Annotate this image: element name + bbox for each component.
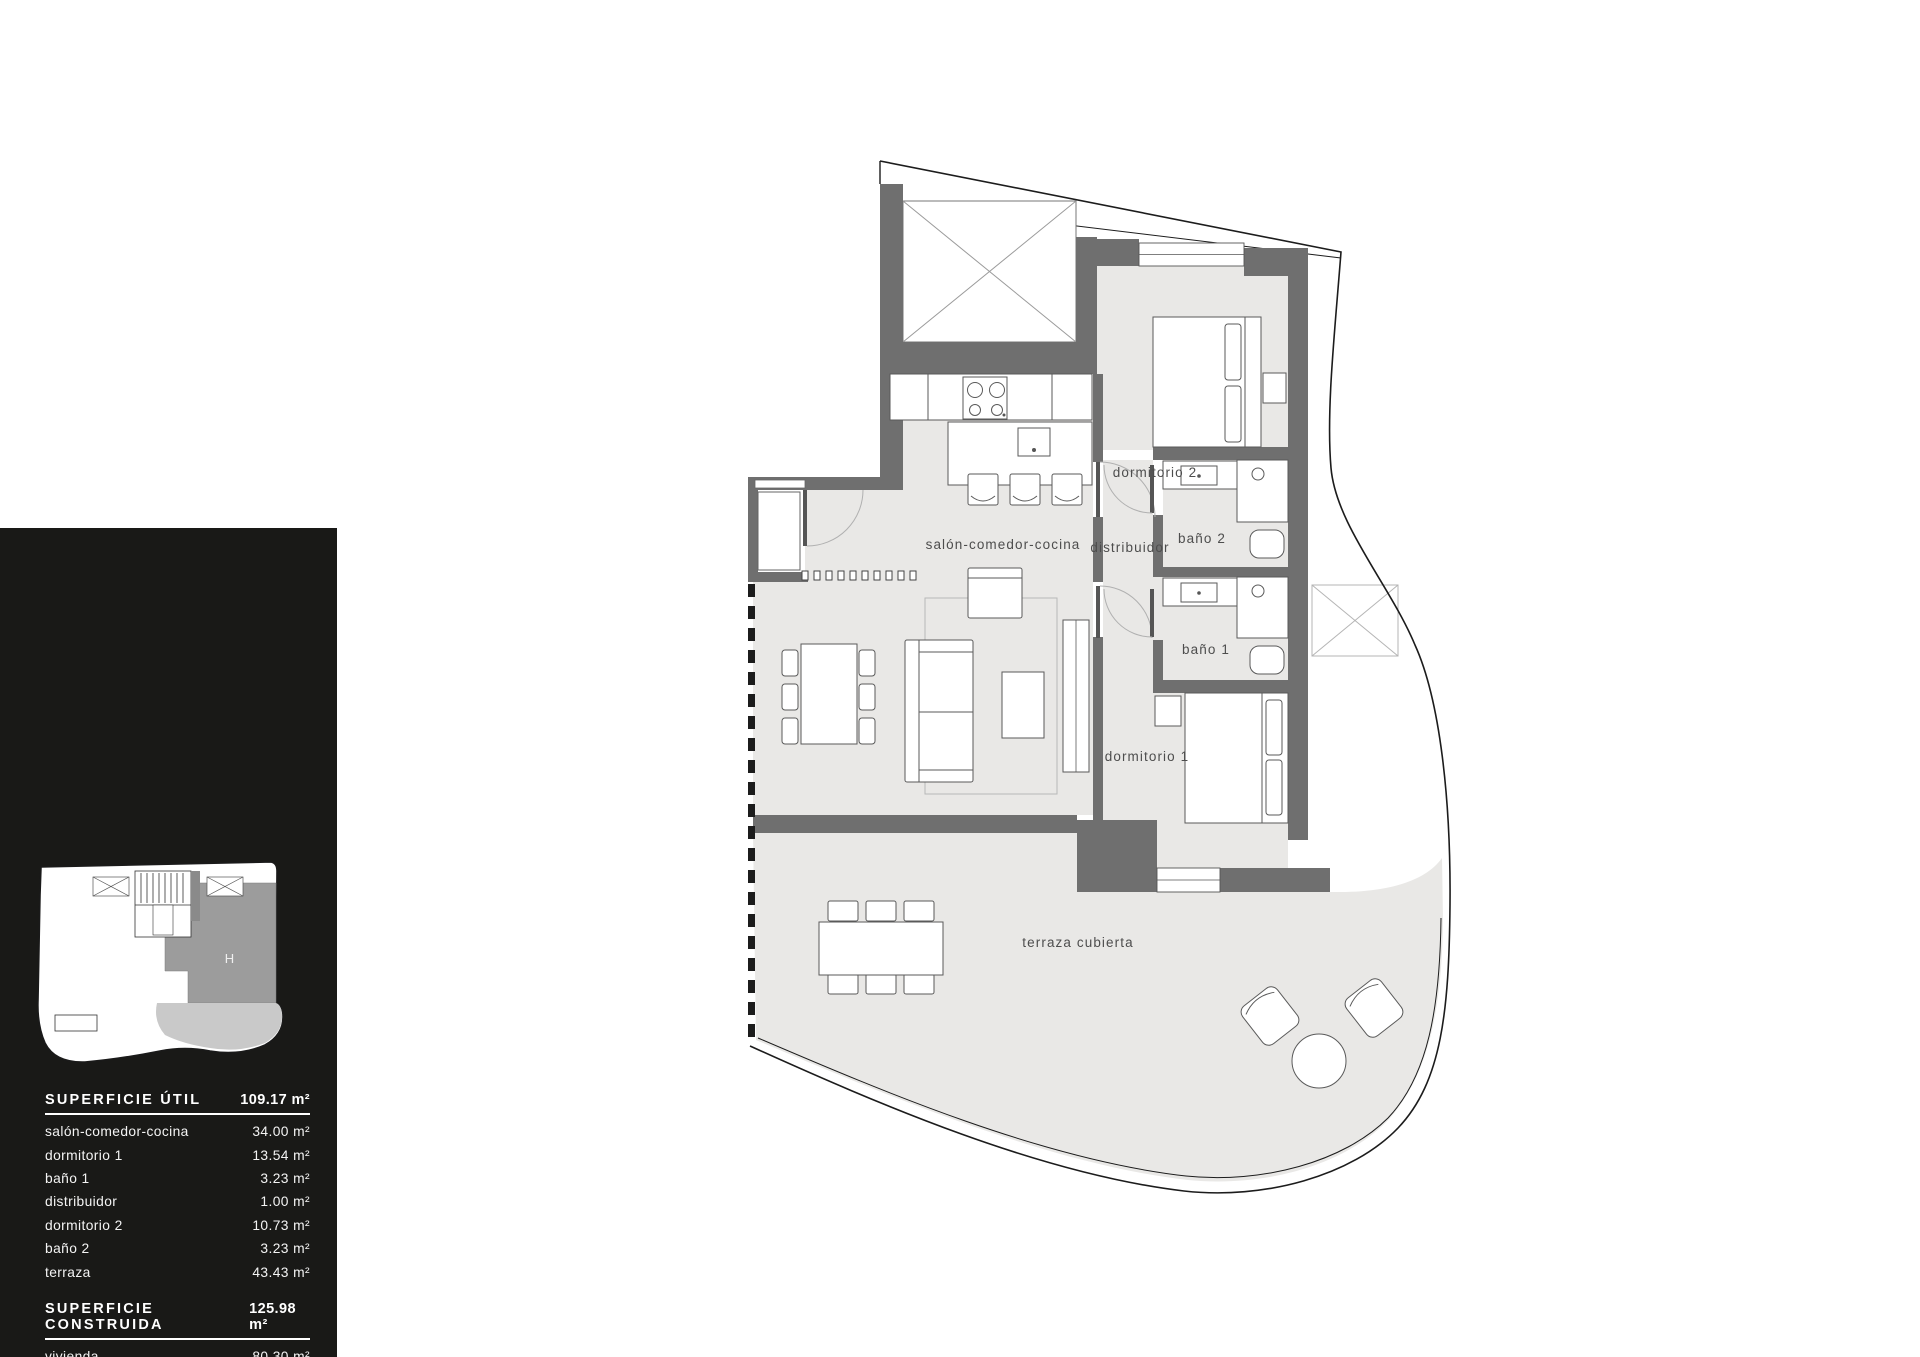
area-row-label: salón-comedor-cocina (45, 1124, 189, 1139)
area-table: SUPERFICIE ÚTIL109.17 m²salón-comedor-co… (45, 1092, 310, 1357)
label-salon: salón-comedor-cocina (926, 537, 1081, 552)
area-row-label: dormitorio 2 (45, 1218, 123, 1233)
area-row: baño 13.23 m² (45, 1167, 310, 1190)
area-section-header: SUPERFICIE CONSTRUIDA125.98 m² (45, 1301, 310, 1340)
label-dormitorio2: dormitorio 2 (1113, 465, 1197, 480)
area-row-value: 13.54 m² (252, 1148, 310, 1163)
locator-elevator (191, 871, 200, 921)
area-row-label: vivienda (45, 1349, 99, 1357)
terrace-dining-set (819, 901, 943, 994)
area-row: dormitorio 210.73 m² (45, 1214, 310, 1237)
area-row-label: terraza (45, 1265, 91, 1280)
coffee-table (1002, 672, 1044, 738)
area-row: vivienda80.30 m² (45, 1345, 310, 1357)
tv-bench (1063, 620, 1089, 772)
kitchen-counter (890, 374, 1092, 420)
area-row: salón-comedor-cocina34.00 m² (45, 1120, 310, 1143)
area-row-label: baño 1 (45, 1171, 90, 1186)
label-bano1: baño 1 (1182, 642, 1230, 657)
area-row-value: 3.23 m² (260, 1171, 310, 1186)
label-dormitorio1: dormitorio 1 (1105, 749, 1189, 764)
area-row-label: baño 2 (45, 1241, 90, 1256)
area-section: SUPERFICIE CONSTRUIDA125.98 m²vivienda80… (45, 1301, 310, 1357)
label-distribuidor: distribuidor (1090, 540, 1169, 555)
area-row-value: 10.73 m² (252, 1218, 310, 1233)
lightwell-top (903, 201, 1076, 342)
area-row-value: 1.00 m² (260, 1194, 310, 1209)
unit-locator-drawing: H (25, 855, 295, 1085)
locator-lightwell-1 (93, 877, 129, 896)
section-title: SUPERFICIE CONSTRUIDA (45, 1301, 249, 1333)
window-dormitorio2 (1139, 243, 1244, 266)
area-row-value: 80.30 m² (252, 1349, 310, 1357)
section-total: 109.17 m² (240, 1092, 310, 1108)
label-bano2: baño 2 (1178, 531, 1226, 546)
locator-stair (135, 871, 191, 937)
floorplan-sheet: dormitorio 2 salón-comedor-cocina distri… (0, 0, 1920, 1357)
section-title: SUPERFICIE ÚTIL (45, 1092, 201, 1108)
kitchen-stools (968, 474, 1082, 505)
area-row-value: 43.43 m² (252, 1265, 310, 1280)
area-row: dormitorio 113.54 m² (45, 1143, 310, 1166)
sofa (905, 640, 973, 782)
terrace-round-table (1292, 1034, 1346, 1088)
locator-lightwell-2 (207, 877, 243, 896)
area-section-header: SUPERFICIE ÚTIL109.17 m² (45, 1092, 310, 1115)
area-row-label: dormitorio 1 (45, 1148, 123, 1163)
dining-set (782, 644, 875, 744)
section-total: 125.98 m² (249, 1301, 310, 1333)
entry-closet (755, 480, 805, 570)
area-row-label: distribuidor (45, 1194, 117, 1209)
area-row-value: 34.00 m² (252, 1124, 310, 1139)
locator-planter (55, 1015, 97, 1031)
label-terraza: terraza cubierta (1022, 935, 1133, 950)
area-row-value: 3.23 m² (260, 1241, 310, 1256)
armchair (968, 568, 1022, 618)
locator-unit-letter: H (225, 951, 235, 966)
area-row: terraza43.43 m² (45, 1260, 310, 1283)
window-dormitorio1 (1157, 868, 1220, 892)
area-row: distribuidor1.00 m² (45, 1190, 310, 1213)
lightwell-right (1312, 585, 1398, 656)
area-section: SUPERFICIE ÚTIL109.17 m²salón-comedor-co… (45, 1092, 310, 1284)
area-row: baño 23.23 m² (45, 1237, 310, 1260)
